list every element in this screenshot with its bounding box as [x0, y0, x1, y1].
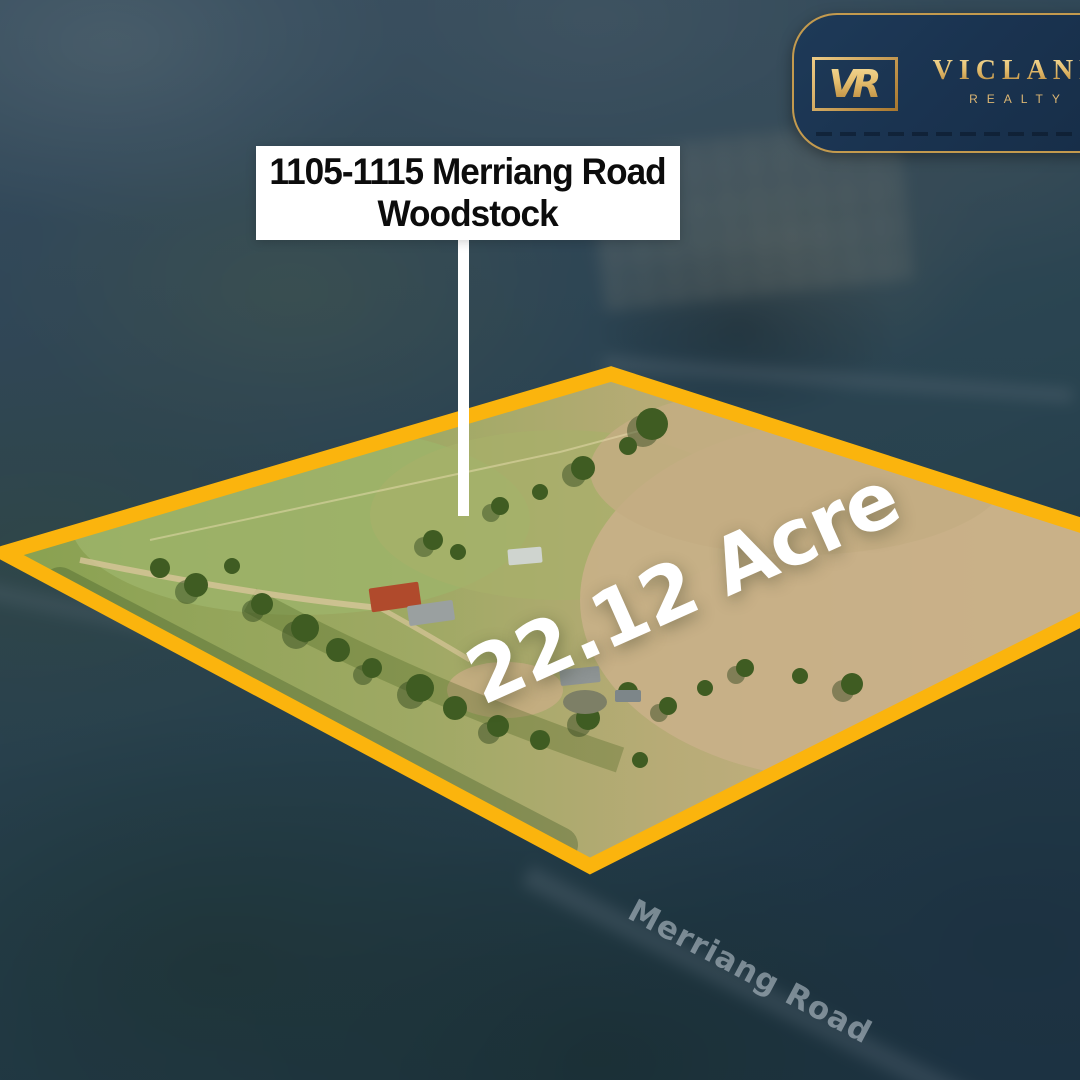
brand-tagline-redacted [816, 132, 1080, 136]
address-label: 1105-1115 Merriang Road Woodstock [256, 146, 680, 240]
white-shed [507, 547, 542, 566]
address-pointer-line [458, 238, 469, 516]
brand-logo-card: VR VICLAND REALTY [792, 13, 1080, 153]
brand-subtitle: REALTY [910, 93, 1080, 105]
dam [563, 690, 607, 714]
brand-name: VICLAND [910, 57, 1080, 85]
brand-monogram-frame: VR [812, 57, 898, 111]
address-line-2: Woodstock [270, 193, 666, 235]
brand-wordmark: VICLAND REALTY [910, 57, 1080, 105]
small-shed [615, 690, 641, 702]
property-poster: 1105-1115 Merriang Road Woodstock 22.12 … [0, 0, 1080, 1080]
address-line-1: 1105-1115 Merriang Road [270, 151, 666, 193]
address-text: 1105-1115 Merriang Road Woodstock [270, 151, 666, 235]
brand-monogram-icon: VR [829, 65, 882, 103]
